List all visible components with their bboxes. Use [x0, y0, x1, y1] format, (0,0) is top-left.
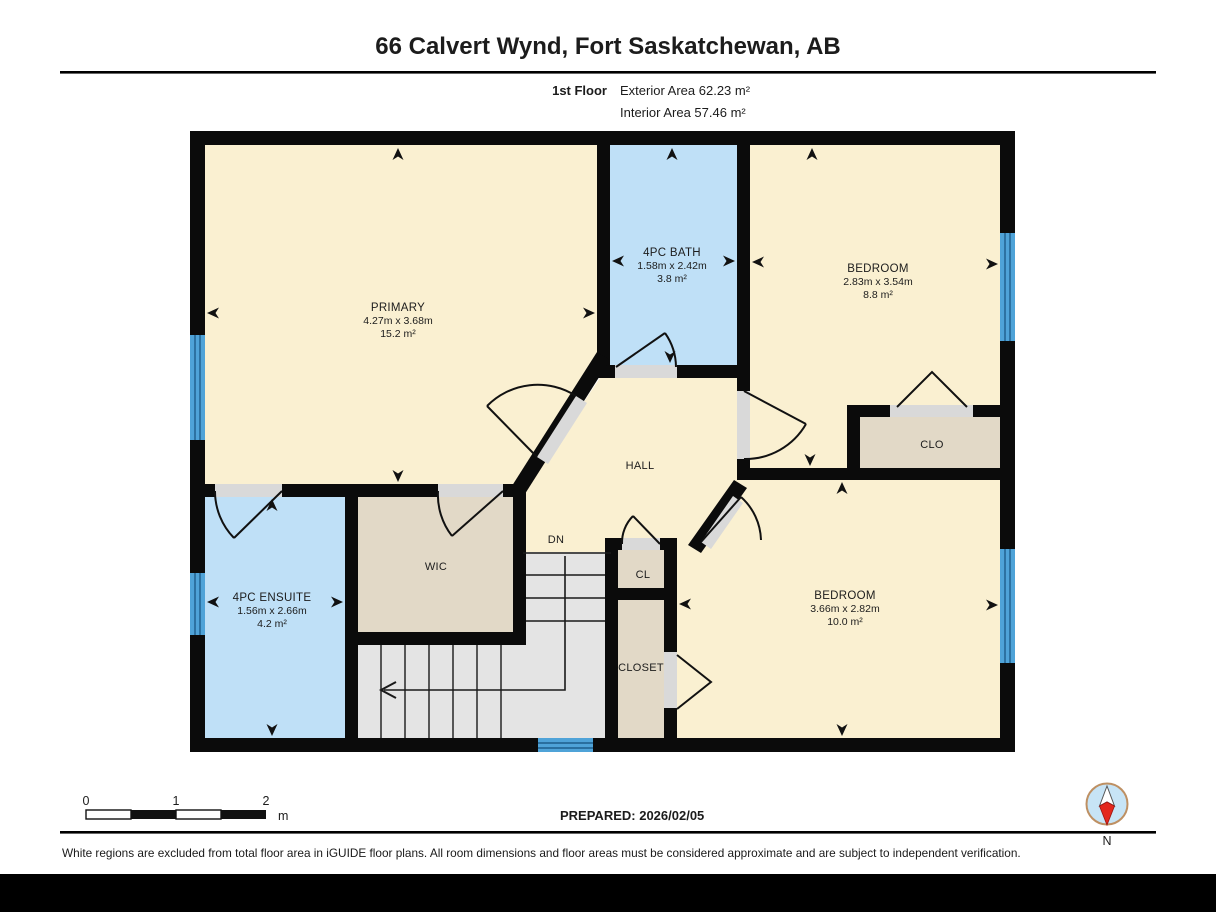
room-label-primary: PRIMARY — [371, 302, 425, 314]
room-dims-bedroom1: 2.83m x 3.54m — [843, 276, 913, 288]
window — [538, 738, 593, 752]
window — [1000, 233, 1015, 341]
room-dims-bedroom2: 3.66m x 2.82m — [810, 603, 880, 615]
scale-tick-0: 0 — [83, 794, 90, 808]
floor-plan-page: 66 Calvert Wynd, Fort Saskatchewan, AB 1… — [0, 0, 1216, 912]
room-label-bedroom1: BEDROOM — [847, 263, 909, 275]
room-area-bedroom1: 8.8 m² — [863, 289, 893, 301]
stairs-down-label: DN — [548, 534, 565, 546]
room-label-wic: WIC — [425, 561, 447, 573]
room-label-bath: 4PC BATH — [643, 247, 701, 259]
scale-unit: m — [278, 809, 288, 823]
room-dims-bath: 1.58m x 2.42m — [637, 260, 707, 272]
exterior-area: Exterior Area 62.23 m² — [620, 83, 751, 98]
room-dims-ensuite: 1.56m x 2.66m — [237, 605, 307, 617]
window — [190, 573, 205, 635]
room-label-clo: CLO — [920, 439, 944, 451]
room-area-bath: 3.8 m² — [657, 273, 687, 285]
room-area-bedroom2: 10.0 m² — [827, 616, 863, 628]
disclaimer-text: White regions are excluded from total fl… — [62, 846, 1021, 860]
scale-tick-2: 2 — [263, 794, 270, 808]
compass-icon: N — [1087, 784, 1128, 849]
room-label-bedroom2: BEDROOM — [814, 590, 876, 602]
scale-bar: 0 1 2 m — [83, 794, 289, 823]
room-area-ensuite: 4.2 m² — [257, 618, 287, 630]
window — [190, 335, 205, 440]
room-dims-primary: 4.27m x 3.68m — [363, 315, 433, 327]
footer: White regions are excluded from total fl… — [0, 831, 1216, 912]
interior-area: Interior Area 57.46 m² — [620, 105, 746, 120]
room-label-hall: HALL — [626, 460, 655, 472]
room-label-closet: CLOSET — [618, 662, 664, 674]
room-label-ensuite: 4PC ENSUITE — [233, 592, 312, 604]
header: 66 Calvert Wynd, Fort Saskatchewan, AB 1… — [60, 33, 1156, 120]
floor-plan-canvas: 66 Calvert Wynd, Fort Saskatchewan, AB 1… — [0, 0, 1216, 912]
scale-tick-1: 1 — [173, 794, 180, 808]
prepared-date: PREPARED: 2026/02/05 — [560, 808, 704, 823]
title-rule — [60, 71, 1156, 74]
footer-rule — [60, 831, 1156, 834]
floor-label: 1st Floor — [552, 83, 607, 98]
compass-north-label: N — [1102, 834, 1111, 848]
room-area-primary: 15.2 m² — [380, 328, 416, 340]
page-title: 66 Calvert Wynd, Fort Saskatchewan, AB — [375, 33, 840, 60]
window — [1000, 549, 1015, 663]
bottom-bar — [0, 874, 1216, 912]
room-label-cl: CL — [636, 569, 651, 581]
